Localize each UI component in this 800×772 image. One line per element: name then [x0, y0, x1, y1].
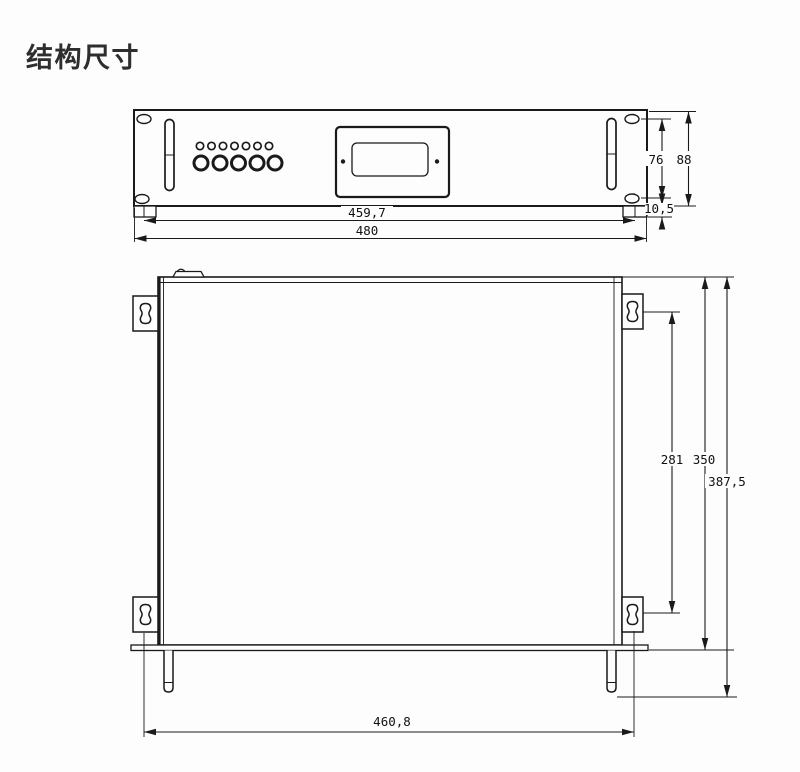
top-view [131, 269, 648, 692]
panel-button [213, 156, 227, 170]
keyhole-slot-icon [627, 605, 637, 625]
keyhole-slot-icon [140, 304, 150, 324]
mounting-ear-bottom-right [622, 597, 643, 632]
top-latch-tab [173, 269, 204, 277]
panel-button [194, 156, 208, 170]
dim-front-hole-spacing-label: 76 [648, 152, 663, 167]
dim-front-inner-width-label: 459,7 [348, 205, 386, 220]
handle-slot-left [165, 120, 174, 191]
dim-front-lip-height-label: 10,5 [644, 201, 674, 216]
mounting-ear-top-right [622, 294, 643, 329]
dim-top-mount-width-label: 460,8 [373, 714, 411, 729]
led-icon [254, 142, 261, 149]
dim-top-keyhole-spacing-label: 281 [661, 452, 684, 467]
led-icon [242, 142, 249, 149]
keyhole-slot-icon [140, 605, 150, 625]
mounting-ear-bottom-left [133, 597, 158, 632]
led-icon [196, 142, 203, 149]
led-icon [219, 142, 226, 149]
front-handle-right [607, 651, 616, 693]
panel-button [232, 156, 246, 170]
lcd-display [336, 127, 449, 197]
panel-button [250, 156, 264, 170]
technical-drawing-canvas: 459,7 480 76 88 10,5 [0, 0, 800, 772]
front-view [134, 110, 647, 217]
led-icon [208, 142, 215, 149]
display-screw-right-icon [435, 159, 439, 163]
rack-hole-bottom-left-icon [135, 195, 149, 204]
front-lip-tab-left [134, 206, 156, 217]
led-icon [265, 142, 272, 149]
push-button-row [194, 156, 282, 170]
handle-slot-right [607, 119, 616, 190]
mounting-ear-top-left [133, 296, 158, 331]
front-lip-edge [131, 645, 648, 651]
chassis-outline [158, 277, 622, 645]
drawing-page: 结构尺寸 [0, 0, 800, 772]
dim-front-outer-width-label: 480 [356, 223, 379, 238]
rack-hole-top-left-icon [137, 115, 151, 124]
front-handle-left [164, 651, 173, 693]
dim-front-panel-height-label: 88 [676, 152, 691, 167]
display-screw-left-icon [341, 159, 345, 163]
rack-hole-bottom-right-icon [625, 194, 639, 203]
led-indicator-row [196, 142, 272, 149]
led-icon [231, 142, 238, 149]
keyhole-slot-icon [627, 302, 637, 322]
rack-hole-top-right-icon [625, 115, 639, 124]
dim-top-body-depth-label: 350 [693, 452, 716, 467]
dim-top-overall-depth-label: 387,5 [708, 474, 746, 489]
panel-button [268, 156, 282, 170]
